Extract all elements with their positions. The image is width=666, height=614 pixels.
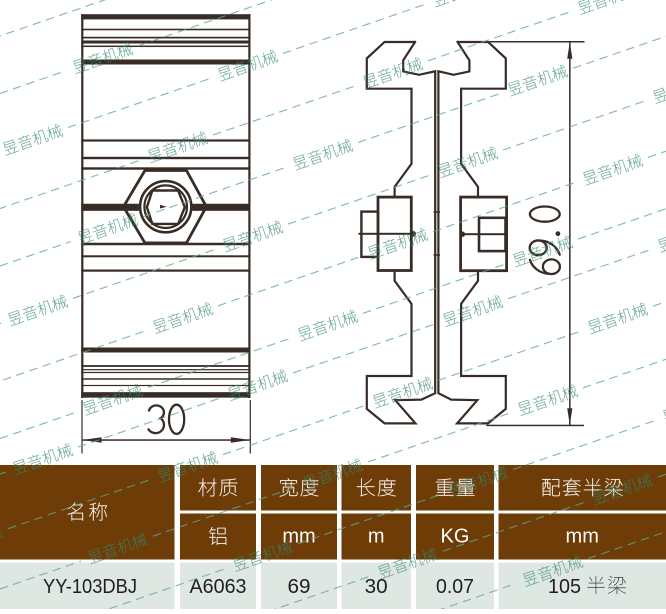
svg-text:30: 30	[365, 575, 388, 598]
svg-text:0.07: 0.07	[436, 575, 474, 598]
svg-text:69: 69	[288, 575, 311, 598]
svg-text:KG: KG	[441, 526, 470, 548]
svg-text:A6063: A6063	[190, 575, 247, 598]
svg-text:mm: mm	[566, 526, 599, 548]
svg-text:m: m	[368, 526, 385, 548]
svg-text:mm: mm	[282, 526, 315, 548]
svg-text:YY-103DBJ: YY-103DBJ	[43, 575, 137, 598]
svg-text:105: 105	[548, 575, 581, 598]
